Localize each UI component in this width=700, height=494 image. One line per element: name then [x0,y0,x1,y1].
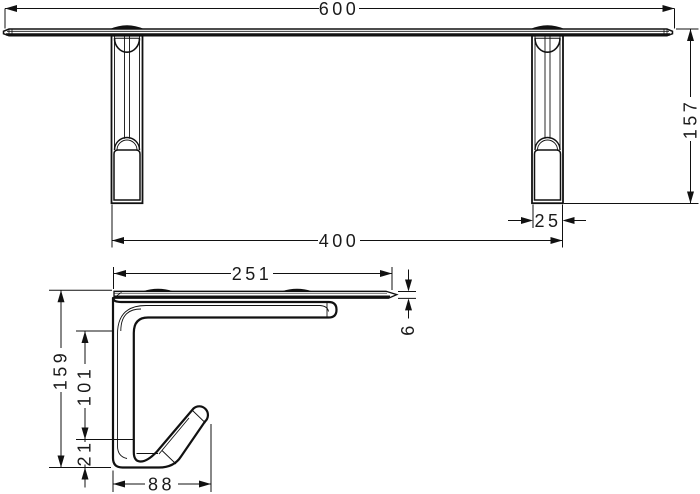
wall-bracket [113,298,337,468]
shelf-plate-side [114,289,397,298]
dim-overall-width: 600 [5,0,675,29]
left-post [112,36,143,204]
boss-bump-side-1 [143,289,173,292]
dim-post-width: 25 [508,205,586,248]
dim-overall-height: 157 [564,29,700,204]
side-view: 251 6 159 [49,264,418,494]
front-view: 600 157 25 400 [4,0,700,251]
dim-shelf-thickness: 6 [398,270,418,336]
dim-88-label: 88 [148,475,175,494]
dim-6-label: 6 [398,322,418,336]
dim-hook-bottom: 21 [75,439,95,487]
shelf-dimension-drawing: 600 157 25 400 [0,0,700,494]
dim-depth: 251 [114,264,393,290]
technical-drawing-page: 600 157 25 400 [0,0,700,494]
left-boss-bump [110,25,144,29]
dim-hook-clearance: 101 [75,331,114,440]
dim-101-label: 101 [75,366,95,407]
dim-21-label: 21 [75,439,95,466]
dim-600-label: 600 [319,0,360,19]
shelf-bar [4,29,673,36]
dim-159-label: 159 [51,350,71,391]
boss-bump-side-2 [282,289,312,292]
dim-157-label: 157 [681,99,700,140]
dim-251-label: 251 [232,264,273,284]
dim-400-label: 400 [319,231,360,251]
dim-25-label: 25 [534,211,561,231]
dim-mount-span: 400 [112,205,563,252]
right-boss-bump [531,25,565,29]
right-post [532,36,563,204]
